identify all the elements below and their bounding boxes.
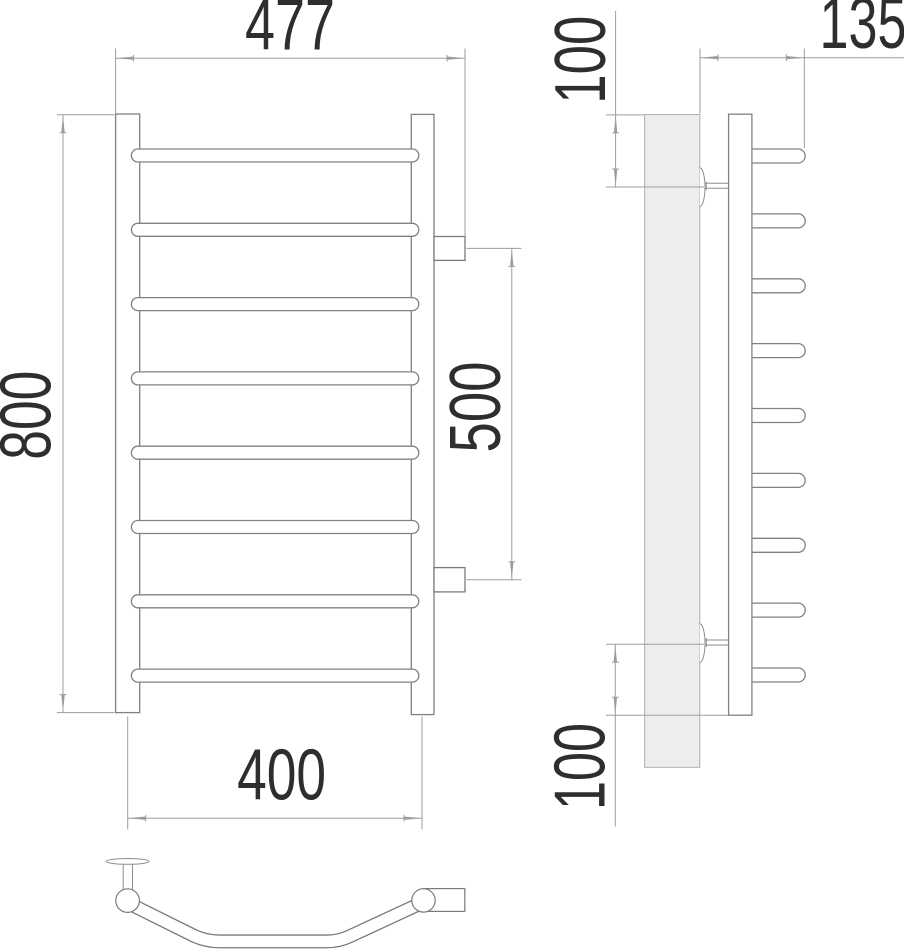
svg-text:100: 100 xyxy=(541,723,621,810)
svg-text:477: 477 xyxy=(245,0,335,66)
svg-text:500: 500 xyxy=(436,362,516,453)
svg-text:135: 135 xyxy=(820,0,904,64)
svg-text:100: 100 xyxy=(541,16,621,104)
svg-text:400: 400 xyxy=(237,736,326,816)
svg-text:800: 800 xyxy=(0,371,67,460)
